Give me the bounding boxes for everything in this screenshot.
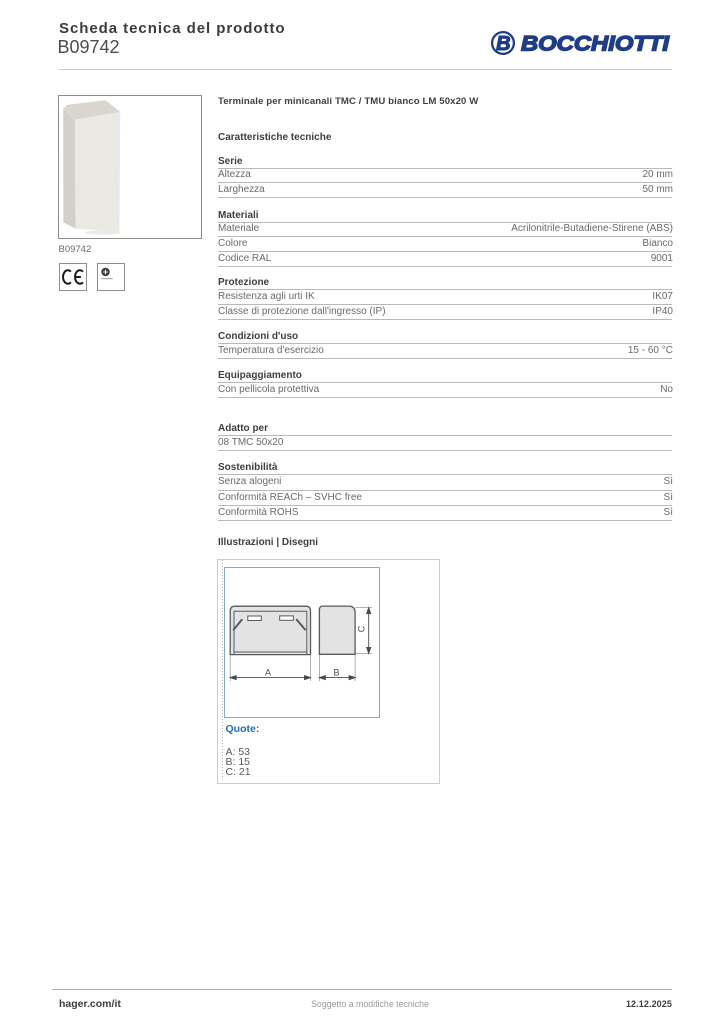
svg-text:A: A [265,667,271,677]
svg-text:B: B [496,33,510,55]
svg-text:C: C [357,625,367,632]
svg-text:B: B [333,667,339,677]
svg-text:BOCCHIOTTI: BOCCHIOTTI [521,33,670,56]
